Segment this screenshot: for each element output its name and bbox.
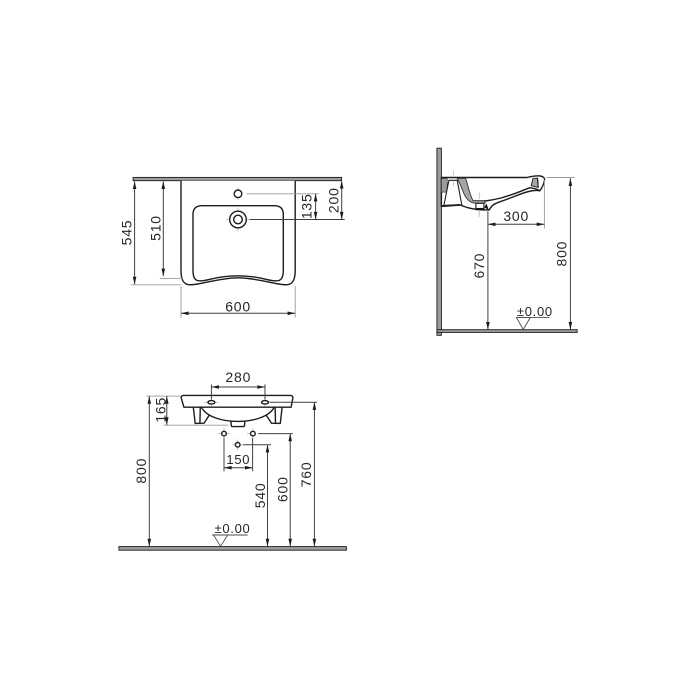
svg-text:800: 800	[133, 458, 149, 484]
svg-text:510: 510	[148, 215, 164, 241]
svg-text:150: 150	[226, 452, 250, 467]
svg-text:670: 670	[471, 253, 487, 279]
svg-text:545: 545	[118, 220, 134, 246]
svg-text:±0.00: ±0.00	[517, 304, 553, 319]
svg-text:200: 200	[326, 187, 342, 213]
svg-text:540: 540	[252, 483, 268, 509]
svg-text:±0.00: ±0.00	[215, 521, 251, 536]
svg-text:800: 800	[553, 241, 569, 267]
svg-text:600: 600	[225, 298, 251, 314]
svg-text:135: 135	[299, 193, 315, 219]
svg-text:280: 280	[225, 369, 251, 385]
svg-text:600: 600	[274, 476, 290, 502]
svg-text:165: 165	[153, 397, 169, 423]
svg-text:760: 760	[298, 462, 314, 488]
svg-text:300: 300	[503, 208, 529, 224]
